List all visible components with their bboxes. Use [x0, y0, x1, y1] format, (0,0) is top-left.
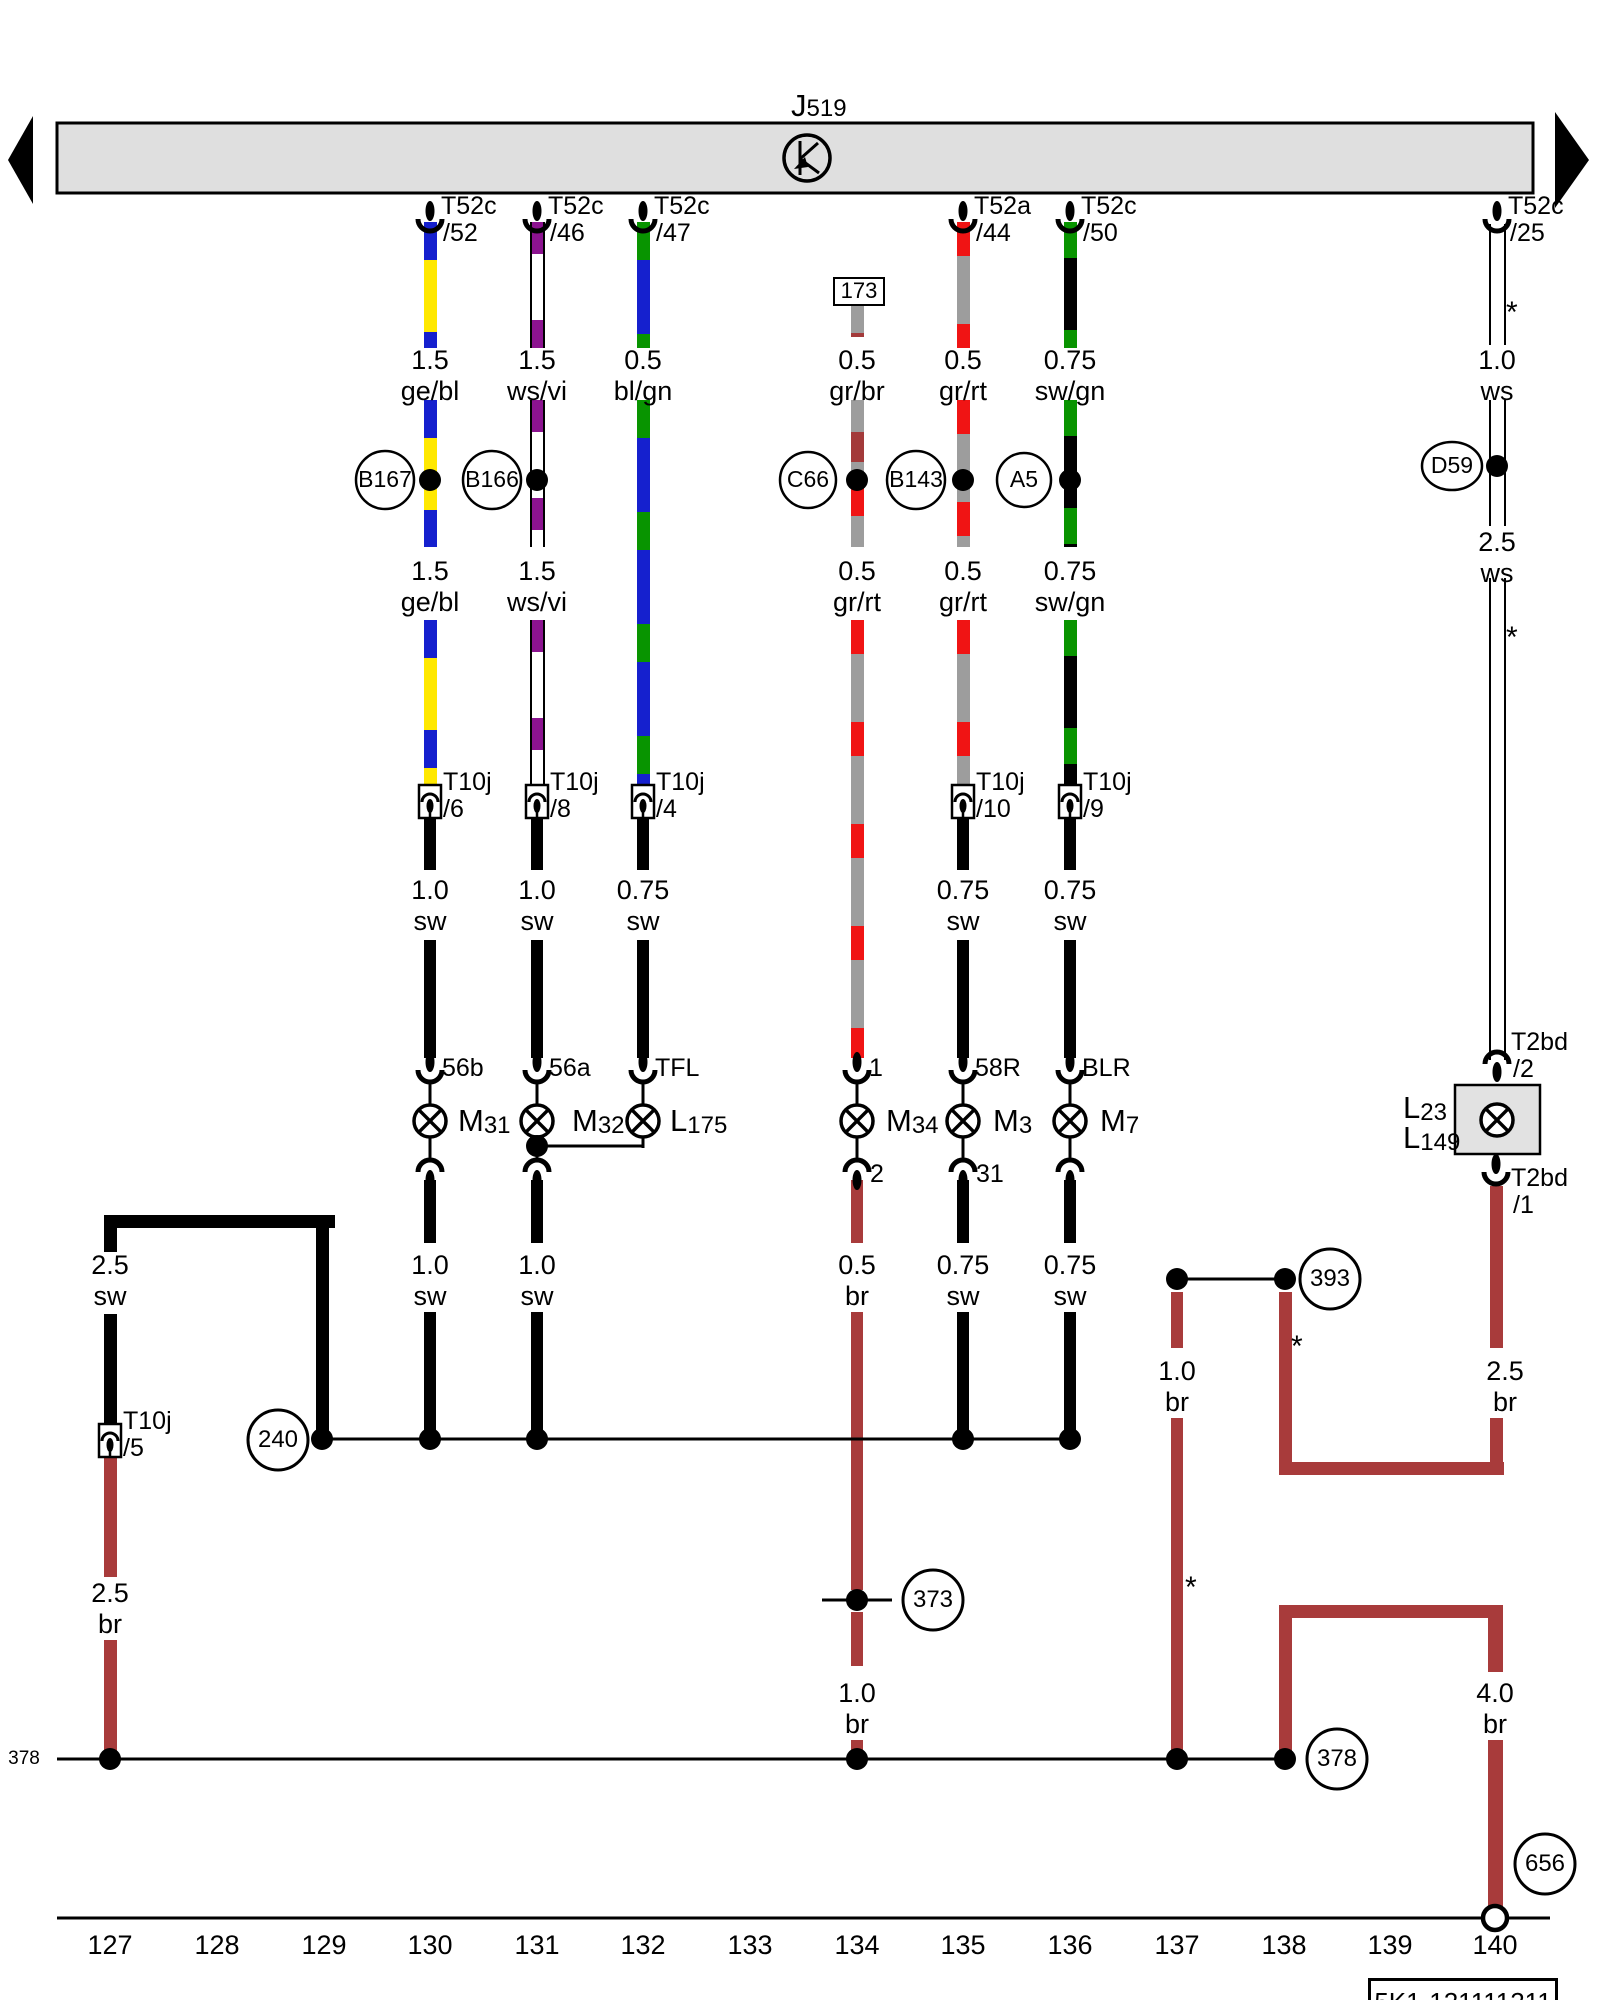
track-number: 134	[834, 1930, 879, 1961]
wire-gauge-label: 1.5	[518, 557, 556, 585]
terminal-pin-label: /44	[976, 221, 1011, 246]
junction-dot	[952, 1428, 974, 1450]
wire-color-label: sw	[1054, 907, 1087, 935]
wire-gauge-label: 1.0	[1478, 346, 1516, 374]
socket-pin-label: 56a	[549, 1056, 591, 1081]
wire-gauge-label: 1.0	[1158, 1357, 1196, 1385]
terminal-pin-label: /46	[550, 221, 585, 246]
terminal-socket-icon	[959, 201, 968, 221]
track-xref-label: 393	[1310, 1266, 1350, 1291]
component-socket-icon	[533, 1170, 542, 1190]
junction-dot	[952, 469, 974, 491]
wire-gauge-label: 0.5	[624, 346, 662, 374]
t10j-pin-label: /8	[550, 797, 571, 822]
control-module-label: J519	[791, 88, 847, 124]
ground-point-icon	[1483, 1906, 1507, 1930]
component-label: M34	[886, 1103, 939, 1140]
junction-dot	[1166, 1748, 1188, 1770]
wire-ref-label: B166	[465, 467, 519, 491]
connection-id-box: 173	[833, 277, 885, 306]
wire-color-label: gr/rt	[939, 377, 987, 405]
track-xref-label: 240	[258, 1427, 298, 1452]
junction-dot	[1274, 1268, 1296, 1290]
track-number: 127	[87, 1930, 132, 1961]
component-socket-icon	[959, 1170, 968, 1190]
t10j-label: T10j	[1083, 770, 1132, 795]
terminal-socket-icon	[426, 201, 435, 221]
track-xref-label: 373	[913, 1587, 953, 1612]
wire-color-label: br	[1493, 1388, 1517, 1416]
junction-dot	[311, 1428, 333, 1450]
component-label: M3	[993, 1103, 1032, 1140]
t10j-label: T10j	[123, 1409, 172, 1434]
junction-dot	[1166, 1268, 1188, 1290]
wire-color-label: sw	[94, 1282, 127, 1310]
option-star: *	[1506, 296, 1518, 330]
wire-color-label: sw	[947, 1282, 980, 1310]
wire-gauge-label: 0.5	[838, 557, 876, 585]
wire-gauge-label: 0.75	[617, 876, 670, 904]
terminal-label: T52c	[1508, 194, 1564, 219]
wire-color-label: sw	[521, 907, 554, 935]
wire-ref-label: B167	[358, 467, 412, 491]
component-label: M32	[572, 1103, 625, 1140]
t10j-pin-label: /5	[123, 1436, 144, 1461]
component-label: M7	[1100, 1103, 1139, 1140]
diagram-symbols	[0, 0, 1600, 2000]
socket-pin-label: 31	[976, 1162, 1004, 1187]
wire-gauge-label: 2.5	[91, 1251, 129, 1279]
junction-dot	[1274, 1748, 1296, 1770]
wire-gauge-label: 0.75	[1044, 1251, 1097, 1279]
bus-bar-j519	[57, 123, 1533, 193]
component-socket-icon	[959, 1052, 968, 1072]
track-number: 128	[194, 1930, 239, 1961]
wire-gauge-label: 0.75	[1044, 557, 1097, 585]
terminal-label: T52c	[441, 194, 497, 219]
lamp-unit-label: L149	[1403, 1120, 1460, 1157]
wire-color-label: ws/vi	[507, 588, 567, 616]
t10j-label: T10j	[550, 770, 599, 795]
terminal-socket-icon	[1493, 1062, 1502, 1082]
track-number: 130	[407, 1930, 452, 1961]
track-number: 135	[940, 1930, 985, 1961]
wire-gauge-label: 1.5	[518, 346, 556, 374]
junction-dot	[1059, 1428, 1081, 1450]
component-socket-icon	[533, 1052, 542, 1072]
t10j-pin-label: /6	[443, 797, 464, 822]
wire-ref-label: B143	[889, 467, 943, 491]
wire-color-label: sw	[521, 1282, 554, 1310]
wire-color-label: sw	[627, 907, 660, 935]
t10j-label: T10j	[443, 770, 492, 795]
terminal-pin-label: /50	[1083, 221, 1118, 246]
track-xref-label: 656	[1525, 1851, 1565, 1876]
wire-ref-label: A5	[1010, 467, 1038, 491]
terminal-socket-icon	[1493, 201, 1502, 221]
t10j-pin-label: /4	[656, 797, 677, 822]
component-socket-icon	[853, 1170, 862, 1190]
terminal-socket-icon	[639, 201, 648, 221]
socket-pin-label: 56b	[442, 1056, 484, 1081]
wire-gauge-label: 1.0	[838, 1679, 876, 1707]
wire-color-label: sw	[947, 907, 980, 935]
terminal-pin-label: /2	[1513, 1057, 1534, 1082]
socket-pin-label: BLR	[1082, 1056, 1131, 1081]
junction-dot	[419, 469, 441, 491]
t10j-pin-label: /10	[976, 797, 1011, 822]
terminal-pin-label: /52	[443, 221, 478, 246]
t10j-pin-label: /9	[1083, 797, 1104, 822]
junction-dot	[99, 1748, 121, 1770]
current-track-row-ref: 378	[8, 1748, 40, 1770]
terminal-pin-label: /25	[1510, 221, 1545, 246]
wire-color-label: gr/br	[829, 377, 885, 405]
wire-color-label: br	[1165, 1388, 1189, 1416]
socket-pin-label: 2	[870, 1162, 884, 1187]
terminal-socket-icon	[1492, 1154, 1501, 1174]
terminal-label: T52c	[548, 194, 604, 219]
track-number: 139	[1367, 1930, 1412, 1961]
terminal-label: T52c	[1081, 194, 1137, 219]
wire-gauge-label: 1.5	[411, 557, 449, 585]
track-number: 136	[1047, 1930, 1092, 1961]
wire-gauge-label: 1.0	[518, 876, 556, 904]
wire-gauge-label: 1.0	[411, 876, 449, 904]
junction-dot	[846, 1589, 868, 1611]
t10j-label: T10j	[976, 770, 1025, 795]
terminal-pin-label: /47	[656, 221, 691, 246]
terminal-label: T52c	[654, 194, 710, 219]
socket-pin-label: 58R	[975, 1056, 1021, 1081]
terminal-socket-icon	[533, 201, 542, 221]
socket-pin-label: TFL	[655, 1056, 699, 1081]
track-number: 132	[620, 1930, 665, 1961]
junction-dot	[526, 469, 548, 491]
wire-color-label: ge/bl	[401, 377, 460, 405]
terminal-socket-icon	[1066, 201, 1075, 221]
wire-color-label: ws	[1481, 559, 1514, 587]
track-number: 138	[1261, 1930, 1306, 1961]
wire-color-label: br	[845, 1710, 869, 1738]
junction-dot	[846, 469, 868, 491]
track-number: 129	[301, 1930, 346, 1961]
track-number: 137	[1154, 1930, 1199, 1961]
wire-color-label: ws	[1481, 377, 1514, 405]
wire-color-label: br	[845, 1282, 869, 1310]
wire-gauge-label: 0.75	[937, 876, 990, 904]
track-number: 140	[1472, 1930, 1517, 1961]
junction-dot	[419, 1428, 441, 1450]
track-xref-label: 378	[1317, 1746, 1357, 1771]
option-star: *	[1506, 621, 1518, 655]
wire-color-label: sw/gn	[1035, 377, 1106, 405]
junction-dot	[1059, 469, 1081, 491]
diagram-id-plate: 5K1-121111211	[1368, 1978, 1558, 2000]
wire-gauge-label: 1.0	[411, 1251, 449, 1279]
component-socket-icon	[426, 1170, 435, 1190]
wire-ref-label: D59	[1431, 453, 1473, 477]
wire-color-label: sw	[414, 1282, 447, 1310]
wire-gauge-label: 2.5	[1478, 528, 1516, 556]
junction-dot	[1486, 455, 1508, 477]
wire-gauge-label: 0.5	[838, 346, 876, 374]
wire-color-label: gr/rt	[833, 588, 881, 616]
component-label: L175	[670, 1103, 727, 1140]
component-socket-icon	[1066, 1052, 1075, 1072]
wire-color-label: br	[98, 1610, 122, 1638]
t10j-label: T10j	[656, 770, 705, 795]
wire-gauge-label: 2.5	[91, 1579, 129, 1607]
wire-gauge-label: 2.5	[1486, 1357, 1524, 1385]
wire-gauge-label: 0.75	[1044, 876, 1097, 904]
wire-gauge-label: 0.5	[944, 346, 982, 374]
wire-gauge-label: 0.75	[1044, 346, 1097, 374]
track-number: 131	[514, 1930, 559, 1961]
wire-gauge-label: 0.5	[944, 557, 982, 585]
option-star: *	[1291, 1330, 1303, 1364]
socket-pin-label: 1	[869, 1056, 883, 1081]
component-socket-icon	[853, 1052, 862, 1072]
wire-gauge-label: 1.0	[518, 1251, 556, 1279]
wiring-diagram-canvas: J519 378 173 5K1-121111211 T52c/52T52c/4…	[0, 0, 1600, 2000]
wire-color-label: sw	[414, 907, 447, 935]
terminal-label: T2bd	[1511, 1030, 1568, 1055]
track-number: 133	[727, 1930, 772, 1961]
junction-dot	[846, 1748, 868, 1770]
wire-color-label: bl/gn	[614, 377, 673, 405]
wire-color-label: ge/bl	[401, 588, 460, 616]
nav-arrow-left[interactable]	[8, 116, 33, 204]
junction-dot	[526, 1428, 548, 1450]
wire-gauge-label: 0.75	[937, 1251, 990, 1279]
wire-gauge-label: 0.5	[838, 1251, 876, 1279]
component-label: M31	[458, 1103, 511, 1140]
component-socket-icon	[1066, 1170, 1075, 1190]
wire-color-label: sw	[1054, 1282, 1087, 1310]
wire-ref-label: C66	[787, 467, 829, 491]
option-star: *	[1185, 1571, 1197, 1605]
terminal-label: T52a	[974, 194, 1031, 219]
junction-dot	[526, 1135, 548, 1157]
component-socket-icon	[426, 1052, 435, 1072]
terminal-label: T2bd	[1511, 1166, 1568, 1191]
wire-color-label: gr/rt	[939, 588, 987, 616]
wire-color-label: br	[1483, 1710, 1507, 1738]
terminal-pin-label: /1	[1513, 1193, 1534, 1218]
wire-color-label: ws/vi	[507, 377, 567, 405]
wire-gauge-label: 4.0	[1476, 1679, 1514, 1707]
wire-color-label: sw/gn	[1035, 588, 1106, 616]
wire-gauge-label: 1.5	[411, 346, 449, 374]
component-socket-icon	[639, 1052, 648, 1072]
